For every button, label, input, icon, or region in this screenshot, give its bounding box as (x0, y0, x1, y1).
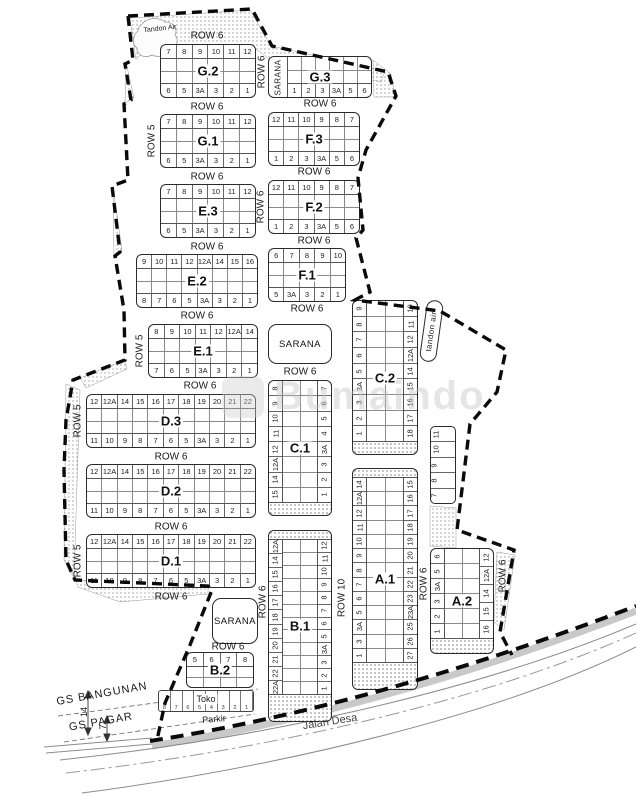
map-label: ROW 6 (212, 642, 245, 653)
map-label: ROW 6 (155, 452, 188, 463)
map-label: ROW 6 (284, 367, 317, 378)
map-label: GS PAGAR (68, 710, 134, 733)
map-label: Jalan Desa (302, 712, 358, 732)
map-label: ROW 5 (73, 545, 84, 578)
site-plan: 789101112653A321G.2SARANA1233A56G.378910… (0, 0, 636, 800)
street-labels-layer: ROW 6ROW 6ROW 6ROW 6ROW 6ROW 6ROW 6ROW 6… (0, 0, 636, 800)
map-label: ROW 6 (258, 586, 269, 619)
map-label: ROW 6 (191, 102, 224, 113)
map-label: Tandon Air (143, 24, 177, 34)
map-label: ROW 6 (181, 311, 214, 322)
map-label: ROW 6 (304, 99, 337, 110)
map-label: ROW 6 (257, 56, 268, 89)
map-label: ROW 6 (155, 522, 188, 533)
map-label: ROW 6 (191, 242, 224, 253)
map-label: ROW 6 (256, 191, 267, 224)
map-label: ROW 6 (291, 304, 324, 315)
map-label: 14 (79, 707, 89, 717)
map-label: ROW 6 (184, 381, 217, 392)
map-label: ROW 6 (191, 31, 224, 42)
map-label: ROW 5 (147, 125, 158, 158)
map-label: ROW 6 (298, 236, 331, 247)
map-label: ROW 5 (135, 335, 146, 368)
map-label: ROW 6 (298, 167, 331, 178)
map-label: ROW 10 (337, 579, 348, 617)
map-label: GS BANGUNAN (56, 680, 149, 708)
map-label: Parkir (202, 713, 226, 725)
map-label: ROW 6 (419, 568, 430, 601)
map-label: ROW 6 (155, 592, 188, 603)
map-label: 7 (98, 724, 108, 729)
map-label: ROW 6 (191, 172, 224, 183)
map-label: ROW 6 (498, 560, 509, 593)
map-label: ROW 5 (73, 405, 84, 438)
